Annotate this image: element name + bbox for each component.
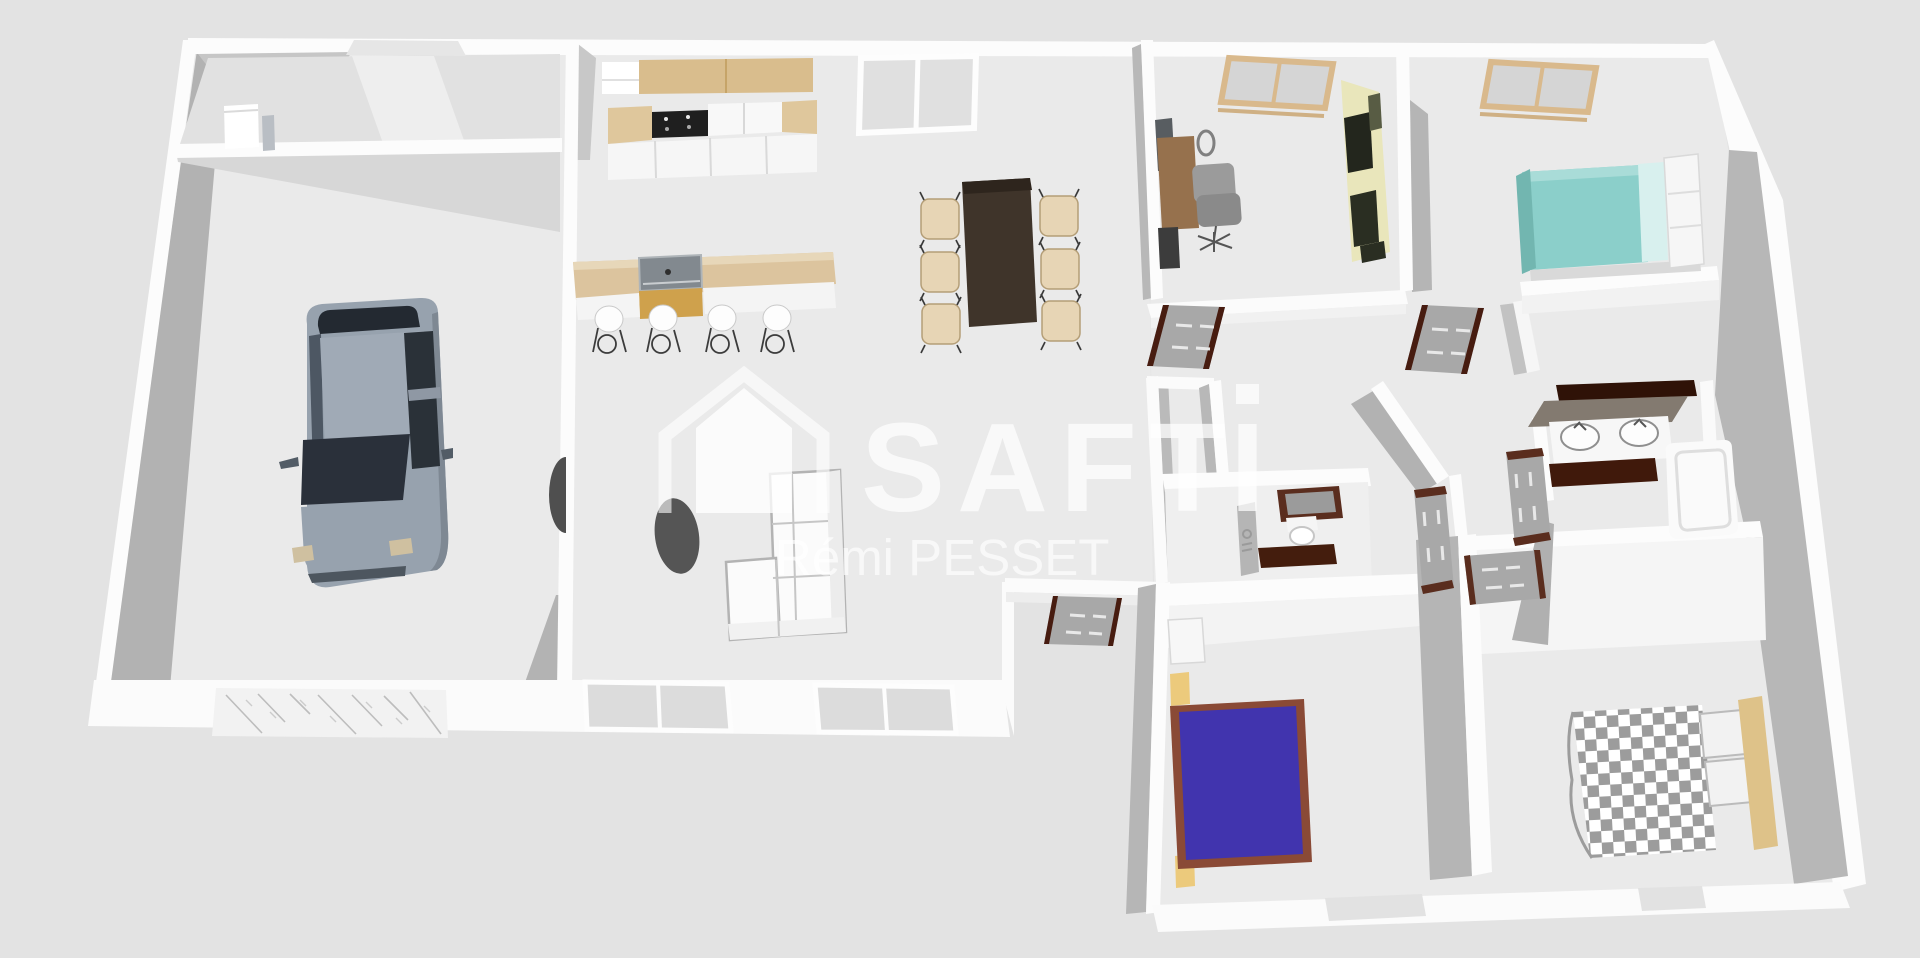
svg-text:I: I bbox=[1230, 397, 1265, 538]
svg-text:Rémi PESSET: Rémi PESSET bbox=[775, 529, 1109, 586]
svg-text:SAFT: SAFT bbox=[861, 397, 1238, 538]
